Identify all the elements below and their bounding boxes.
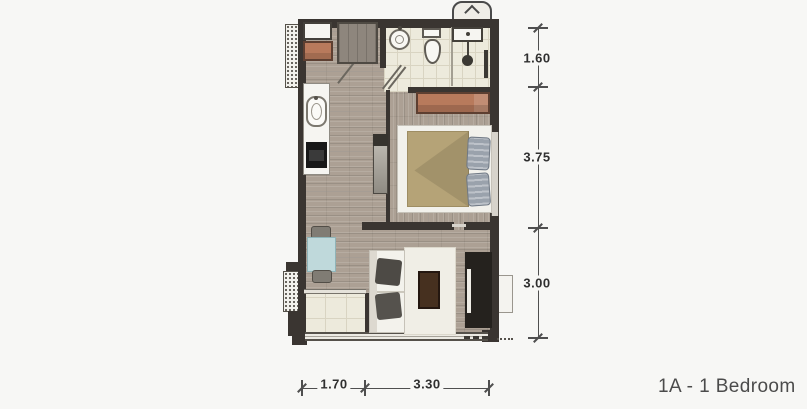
floor-plan-page: 1.60 3.75 3.00 1.70 3.30 1A - 1 Bedroom xyxy=(0,0,807,409)
bed-duvet xyxy=(407,131,469,207)
basin-bowl xyxy=(395,35,404,44)
scale-dashes xyxy=(497,338,513,340)
toilet-tank xyxy=(422,28,441,38)
entry-door-panel xyxy=(337,22,378,64)
wall-bedroom-divider-left xyxy=(362,222,454,230)
sliding-panel-cap xyxy=(373,134,388,146)
bottom-window-wall xyxy=(305,332,488,341)
sink-faucet xyxy=(314,96,318,100)
dim-tick xyxy=(364,380,366,396)
sofa xyxy=(369,250,405,333)
sink-bowl xyxy=(311,103,322,120)
bedroom-window xyxy=(491,132,499,216)
wall-bedroom-divider-right xyxy=(464,222,492,230)
kitchen-sink xyxy=(306,96,327,127)
dim-tick xyxy=(528,86,548,88)
sofa-pillow-top xyxy=(375,258,403,286)
dimension-line-vertical xyxy=(538,28,539,338)
dining-chair-bottom xyxy=(312,270,332,283)
tv-screen xyxy=(467,269,471,313)
dining-table xyxy=(307,237,336,272)
dim-label-vertical-1: 1.60 xyxy=(520,51,553,66)
shower-fixture-bar xyxy=(484,50,488,78)
dim-tick xyxy=(528,227,548,229)
dim-tick xyxy=(488,380,490,396)
dim-label-vertical-2: 3.75 xyxy=(520,150,553,165)
basin-faucet xyxy=(398,26,402,30)
shelf-knob xyxy=(466,32,470,36)
dim-tick xyxy=(528,337,548,339)
wall-bathroom-left xyxy=(380,26,386,68)
bedroom-sliding-door xyxy=(452,224,466,227)
sliding-panel xyxy=(373,134,388,194)
dresser xyxy=(416,92,490,114)
sofa-pillow-bottom xyxy=(375,292,403,320)
dim-tick xyxy=(301,380,303,396)
dim-label-vertical-3: 3.00 xyxy=(520,276,553,291)
kitchen-cabinet xyxy=(303,41,333,61)
bathroom-basin xyxy=(389,29,410,50)
stove xyxy=(306,142,327,168)
balcony-sliding-door xyxy=(304,289,366,294)
kitchen-upper-cabinet xyxy=(303,22,332,40)
bed-pillow-bottom xyxy=(466,172,491,207)
dim-label-horizontal-2: 3.30 xyxy=(410,377,443,392)
bed-pillow-top xyxy=(466,136,491,170)
shower-head xyxy=(462,55,473,66)
dim-tick xyxy=(528,27,548,29)
coffee-table xyxy=(418,271,440,309)
stove-burners xyxy=(309,150,324,161)
dim-label-horizontal-1: 1.70 xyxy=(317,377,350,392)
vent-dashes xyxy=(464,336,488,339)
unit-title: 1A - 1 Bedroom xyxy=(658,376,796,399)
